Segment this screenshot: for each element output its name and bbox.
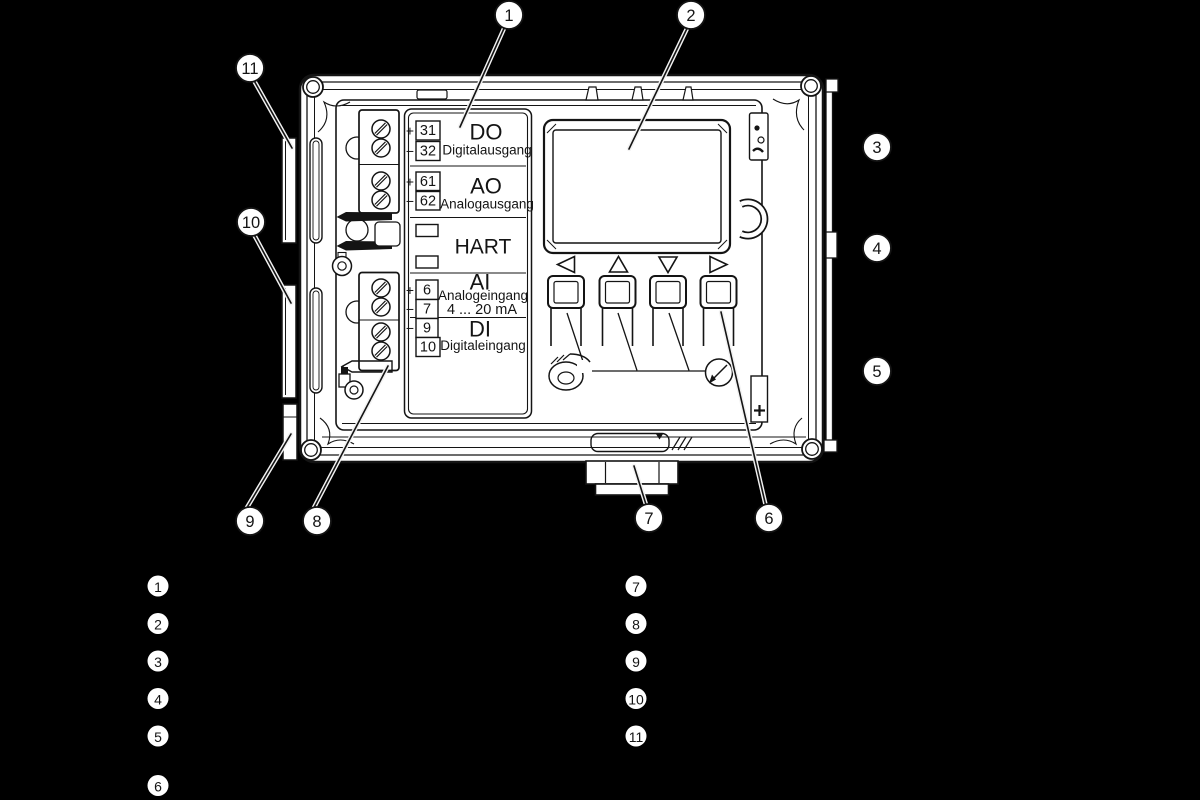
legend-item-3: 3: [148, 651, 169, 672]
terminal-31: 31: [420, 123, 436, 139]
legend-item-2: 2: [148, 613, 169, 634]
callout-6: 6: [755, 504, 783, 532]
terminal-10: 10: [420, 340, 436, 356]
label-do-name: Digitalausgang: [442, 143, 531, 158]
legend-item-1: 1: [148, 576, 169, 597]
terminal-screw: [372, 139, 390, 157]
callout-5: 5: [863, 357, 891, 385]
sign-do-plus: +: [406, 123, 414, 139]
callout-4-number: 4: [872, 240, 881, 258]
sign-do-minus: −: [406, 143, 414, 159]
callout-8: 8: [303, 507, 331, 535]
callout-10-number: 10: [242, 214, 260, 232]
callout-8-number: 8: [312, 513, 321, 531]
legend-7-number: 7: [632, 579, 640, 595]
callout-9-number: 9: [245, 513, 254, 531]
screwdriver-mark-icon: [706, 359, 733, 386]
terminal-61: 61: [420, 174, 436, 190]
terminal-screw: [372, 323, 390, 341]
legend-item-7: 7: [626, 576, 647, 597]
callout-1: 1: [495, 1, 523, 29]
sign-ai-plus: +: [406, 282, 414, 298]
callout-1-number: 1: [504, 7, 513, 25]
callout-5-number: 5: [872, 363, 881, 381]
terminal-32: 32: [420, 144, 436, 160]
legend-1-number: 1: [154, 579, 162, 595]
corner-screw-bl: [301, 440, 321, 460]
label-di-name: Digitaleingang: [440, 338, 526, 353]
legend-9-number: 9: [632, 654, 640, 670]
terminal-screw: [372, 279, 390, 297]
terminal-screw: [372, 298, 390, 316]
sign-ao-minus: −: [406, 193, 414, 209]
figure-canvas: + − 31 32 DO Digitalausgang + − 61 62 AO…: [0, 0, 1200, 800]
terminal-62: 62: [420, 194, 436, 210]
corner-screw-br: [802, 439, 822, 459]
terminal-label: + − 31 32 DO Digitalausgang + − 61 62 AO…: [405, 109, 534, 418]
label-ao: AO: [470, 174, 502, 199]
label-ao-name: Analogausgang: [440, 197, 534, 212]
legend-3-number: 3: [154, 654, 162, 670]
boss-circle-2: [346, 219, 368, 241]
callout-7: 7: [635, 504, 663, 532]
callout-4: 4: [863, 234, 891, 262]
terminal-block-bottom: [359, 273, 399, 371]
callout-6-number: 6: [764, 510, 773, 528]
legend-item-9: 9: [626, 651, 647, 672]
legend-5-number: 5: [154, 729, 162, 745]
display-screen: [553, 130, 721, 243]
display: [544, 120, 730, 253]
label-hart: HART: [455, 236, 512, 259]
label-do: DO: [470, 120, 503, 145]
label-ai-name: Analogeingang: [438, 288, 528, 303]
legend-item-5: 5: [148, 726, 169, 747]
terminal-7: 7: [423, 302, 431, 318]
led-dot-filled: [754, 125, 759, 130]
callout-3: 3: [863, 133, 891, 161]
callout-7-number: 7: [644, 510, 653, 528]
sign-ao-plus: +: [406, 174, 414, 190]
legend-item-6: 6: [148, 775, 169, 796]
terminal-screw: [372, 342, 390, 360]
legend-11-number: 11: [629, 729, 644, 745]
corner-screw-tl: [303, 77, 323, 97]
legend-2-number: 2: [154, 617, 162, 633]
terminal-screw: [372, 120, 390, 138]
callout-2-number: 2: [686, 7, 695, 25]
callout-3-number: 3: [872, 139, 881, 157]
legend-6-number: 6: [154, 779, 162, 795]
callout-2: 2: [677, 1, 705, 29]
legend-10-number: 10: [628, 692, 644, 708]
callout-10: 10: [237, 208, 265, 236]
mounting-plate-top: [282, 138, 296, 243]
legend-4-number: 4: [154, 692, 162, 708]
terminal-screw: [372, 172, 390, 190]
terminal-block-top: [359, 110, 399, 213]
legend-8-number: 8: [632, 617, 640, 633]
callout-11-number: 11: [241, 60, 258, 78]
legend-item-10: 10: [626, 688, 647, 709]
terminal-6: 6: [423, 283, 431, 299]
callout-11: 11: [236, 54, 264, 82]
side-slot: [751, 376, 768, 422]
legend-item-11: 11: [626, 726, 647, 747]
terminal-9: 9: [423, 321, 431, 337]
legend-item-8: 8: [626, 613, 647, 634]
corner-screw-tr: [801, 76, 821, 96]
sign-di-minus: −: [406, 320, 414, 336]
status-panel: [750, 113, 769, 160]
sign-ai-minus: −: [406, 301, 414, 317]
legend-item-4: 4: [148, 688, 169, 709]
callout-9: 9: [236, 507, 264, 535]
terminal-screw: [372, 191, 390, 209]
device-diagram: + − 31 32 DO Digitalausgang + − 61 62 AO…: [0, 0, 1200, 800]
